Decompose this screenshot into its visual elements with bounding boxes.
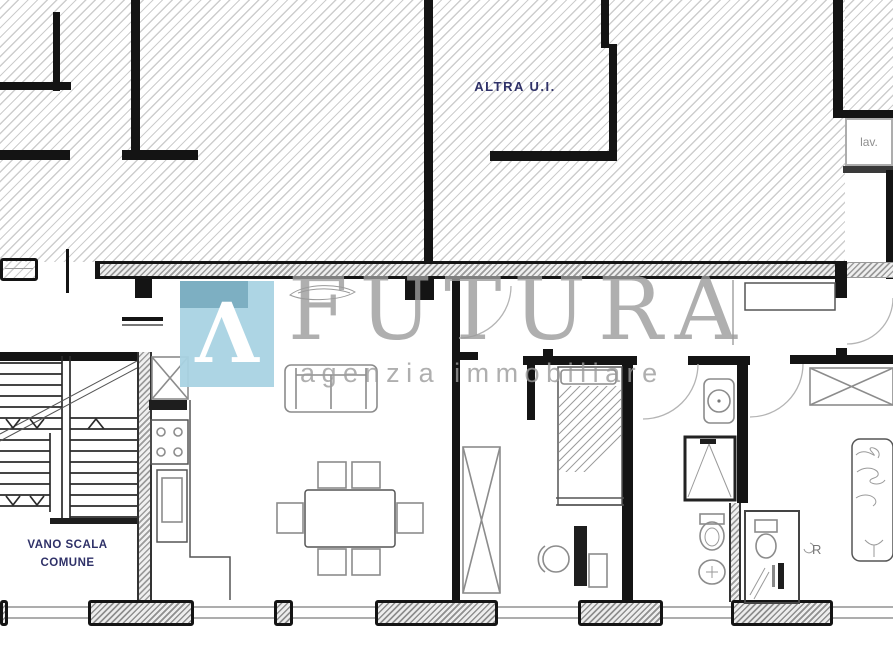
cooktop-icon bbox=[151, 420, 188, 464]
kitchen-cabinet bbox=[157, 470, 187, 542]
dining-table bbox=[277, 462, 423, 575]
shower-icon bbox=[685, 437, 735, 500]
kitchen-peninsula bbox=[190, 400, 230, 600]
bidet-icon bbox=[699, 560, 725, 584]
logo-letter: Λ bbox=[180, 281, 274, 387]
wardrobe-bedroom bbox=[810, 368, 893, 405]
washbasin-icon bbox=[704, 379, 734, 423]
sideboard bbox=[745, 283, 835, 310]
wardrobe-corridor bbox=[463, 447, 500, 593]
toilet-icon bbox=[700, 514, 724, 550]
bed-bedroom bbox=[852, 439, 893, 561]
radiator-label: R bbox=[812, 542, 821, 557]
stairwell-label-line1: VANO SCALA bbox=[0, 539, 135, 551]
agency-logo: Λ bbox=[180, 281, 274, 387]
watermark-tagline: agenzia immobiliare bbox=[300, 358, 664, 389]
other-unit-label: ALTRA U.I. bbox=[455, 79, 575, 94]
floor-plan: lav. bbox=[0, 0, 893, 670]
stairs bbox=[0, 356, 137, 524]
kitchen-counter bbox=[149, 400, 187, 410]
stairwell-label-line2: COMUNE bbox=[0, 557, 135, 569]
desk-and-chair bbox=[538, 526, 607, 587]
kitchen bbox=[149, 357, 230, 600]
wc-room bbox=[745, 511, 799, 603]
watermark-brand: FUTURA bbox=[288, 268, 749, 352]
